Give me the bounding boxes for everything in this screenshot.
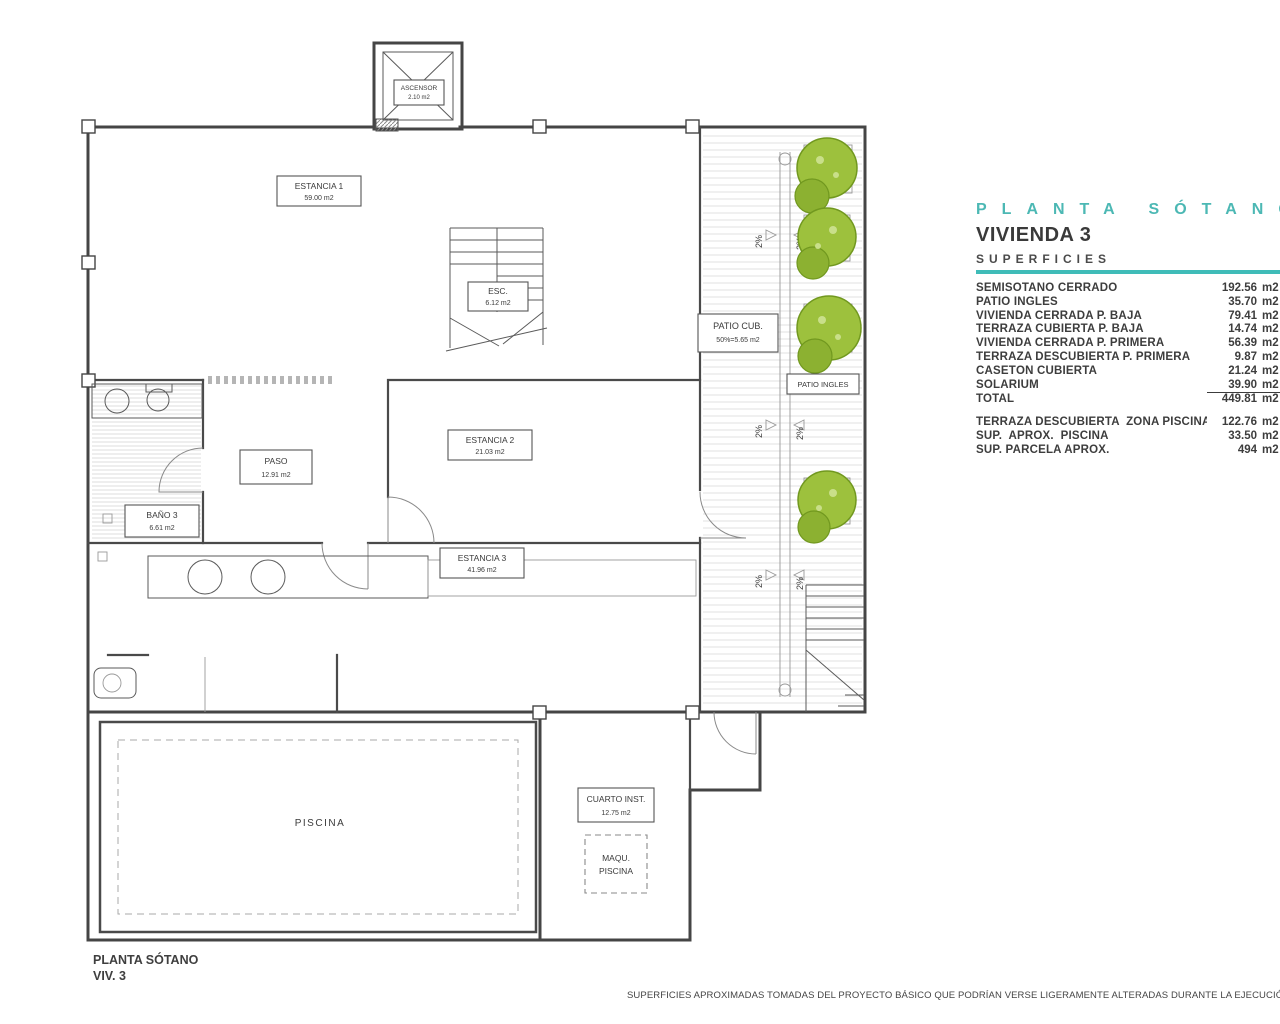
ascensor-area: 2.10 m2: [408, 95, 430, 101]
slope-label: 2%: [754, 575, 764, 588]
slope-label: 2%: [795, 427, 805, 440]
table-row: VIVIENDA CERRADA P. BAJA 79.41 m2: [976, 310, 1280, 324]
disclaimer-text: SUPERFICIES APROXIMADAS TOMADAS DEL PROY…: [627, 990, 1280, 1001]
table-row-total: TOTAL 449.81 m2: [976, 393, 1280, 407]
table-row: TERRAZA DESCUBIERTA P. PRIMERA 9.87 m2: [976, 351, 1280, 365]
doors: [159, 448, 756, 754]
table-row: CASETÓN CUBIERTA 21.24 m2: [976, 365, 1280, 379]
bano3-label: BAÑO 3: [146, 510, 177, 520]
pool-machinery: MAQU. PISCINA: [585, 835, 647, 893]
section-title: SUPERFICIES: [976, 252, 1280, 266]
pool: PISCINA: [100, 722, 536, 932]
esc-area: 6.12 m2: [485, 300, 510, 307]
table-row: TERRAZA CUBIERTA P. BAJA 14.74 m2: [976, 323, 1280, 337]
plan-title: PLANTA SÓTANO: [976, 201, 1280, 223]
piscina-label: PISCINA: [295, 818, 346, 829]
title-block: PLANTA SÓTANO VIV. 3: [93, 952, 198, 984]
patio-cub-label: PATIO CUB.: [713, 321, 763, 331]
slope-label: 2%: [795, 577, 805, 590]
footer-unit-ref: VIV. 3: [93, 968, 198, 984]
floor-plan-drawing: ASCENSOR 2.10 m2: [0, 0, 960, 1024]
table-row: PATIO INGLÉS 35.70 m2: [976, 296, 1280, 310]
estancia2-area: 21.03 m2: [475, 449, 504, 456]
patio-cub-area: 50%=5.65 m2: [716, 337, 759, 344]
maqu-piscina-label: MAQU.: [602, 853, 630, 863]
estancia2-label: ESTANCIA 2: [466, 435, 515, 445]
table-row: SUP. APROX. PISCINA 33.50 m2: [976, 430, 1280, 444]
cuarto-inst-area: 12.75 m2: [601, 810, 630, 817]
patio-ingles-label: PATIO INGLES: [798, 380, 849, 389]
table-row: TERRAZA DESCUBIERTA ZONA PISCINA 122.76 …: [976, 416, 1280, 430]
table-row-solarium: SOLARIUM 39.90 m2: [976, 379, 1280, 394]
ascensor-label: ASCENSOR: [401, 85, 438, 92]
paso-label: PASO: [265, 456, 288, 466]
slope-label: 2%: [754, 425, 764, 438]
accent-rule: [976, 270, 1280, 274]
estancia3-label: ESTANCIA 3: [458, 553, 507, 563]
estancia1-label: ESTANCIA 1: [295, 181, 344, 191]
table-row: SUP. PARCELA APROX. 494 m2: [976, 444, 1280, 458]
surfaces-panel: PLANTA SÓTANO VIVIENDA 3 SUPERFICIES SEM…: [976, 201, 1280, 458]
bano3-area: 6.61 m2: [149, 525, 174, 532]
cuarto-inst-label: CUARTO INST.: [587, 794, 646, 804]
esc-label: ESC.: [488, 286, 508, 296]
estancia1-area: 59.00 m2: [304, 195, 333, 202]
dotted-overhead-line: [208, 376, 332, 384]
footer-plan-name: PLANTA SÓTANO: [93, 952, 198, 968]
elevator-shaft: ASCENSOR 2.10 m2: [374, 43, 462, 131]
ascensor-label-box: [394, 80, 444, 105]
paso-area: 12.91 m2: [261, 472, 290, 479]
table-row: SEMISÓTANO CERRADO 192.56 m2: [976, 282, 1280, 296]
estancia3-area: 41.96 m2: [467, 567, 496, 574]
areas-table: SEMISÓTANO CERRADO 192.56 m2 PATIO INGLÉ…: [976, 282, 1280, 458]
table-row: VIVIENDA CERRADA P. PRIMERA 56.39 m2: [976, 337, 1280, 351]
kitchen-fixtures: [94, 552, 696, 712]
floor-plan-page: ASCENSOR 2.10 m2: [0, 0, 1280, 1024]
slope-label: 2%: [754, 235, 764, 248]
stairs-interior: ESC. 6.12 m2: [446, 228, 547, 351]
unit-title: VIVIENDA 3: [976, 224, 1280, 247]
maqu-piscina-label2: PISCINA: [599, 866, 633, 876]
table-gap: [976, 407, 1280, 416]
